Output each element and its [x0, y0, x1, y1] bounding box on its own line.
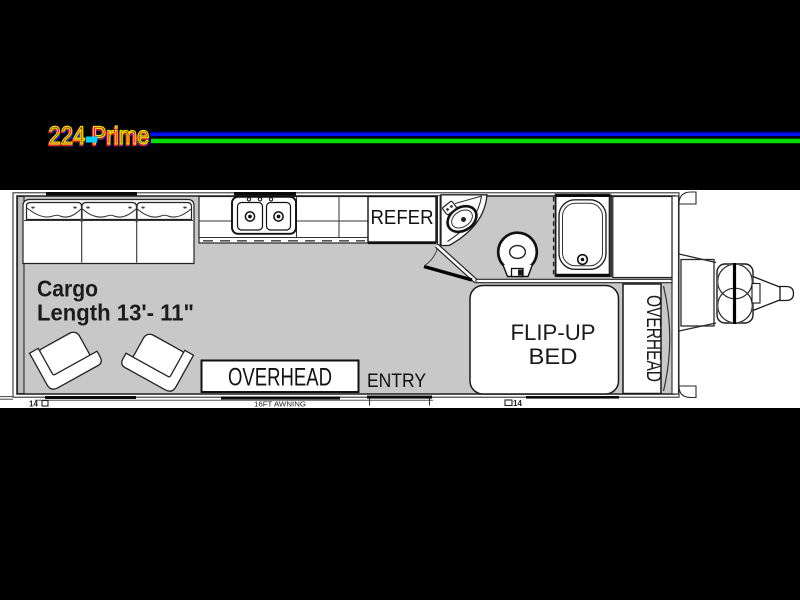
svg-text:14: 14 [29, 400, 38, 409]
svg-text:Cargo: Cargo [37, 276, 98, 302]
svg-text:Length 13'- 11": Length 13'- 11" [37, 300, 194, 326]
svg-text:BED: BED [529, 344, 578, 369]
svg-text:OVERHEAD: OVERHEAD [642, 295, 665, 382]
svg-text:224 Prime: 224 Prime [49, 122, 150, 150]
svg-text:16FT AWNING: 16FT AWNING [254, 400, 306, 409]
svg-text:REFER: REFER [371, 206, 434, 229]
svg-text:ENTRY: ENTRY [367, 370, 426, 392]
svg-text:OVERHEAD: OVERHEAD [228, 364, 332, 392]
svg-text:FLIP-UP: FLIP-UP [511, 320, 596, 345]
svg-text:14: 14 [513, 399, 522, 408]
